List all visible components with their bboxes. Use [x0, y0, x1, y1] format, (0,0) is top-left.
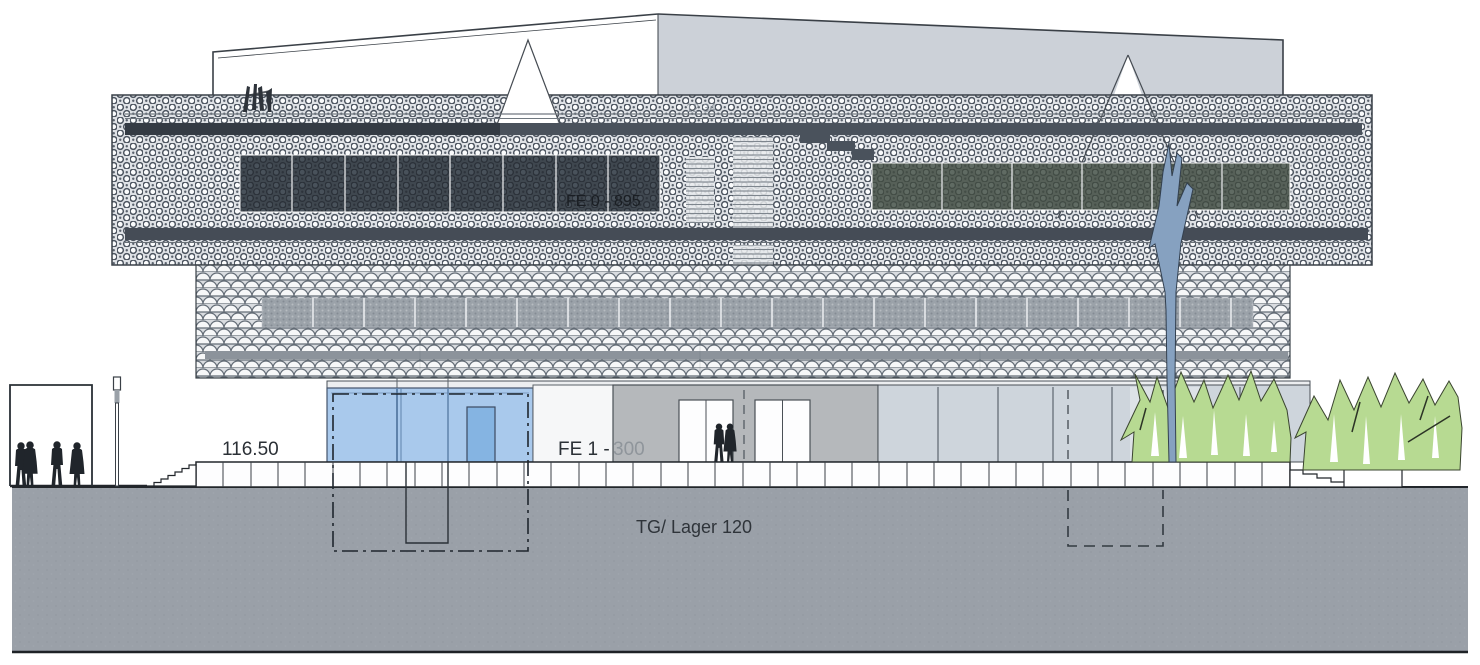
louver-strip-a-dark: [125, 123, 500, 135]
roof-gray-volume: [658, 14, 1283, 95]
entrance-wall: [613, 385, 878, 462]
lamp-post: [114, 377, 121, 486]
roof-white-volume: [213, 14, 658, 95]
label-roof-faint: 12 34: [686, 101, 716, 115]
label-basement: TG/ Lager 120: [636, 517, 752, 537]
pedestrians-left: [15, 441, 85, 486]
plaza-pavement: [196, 462, 1290, 487]
label-fe0: FE 0 - 895: [566, 193, 641, 210]
label-fe1: FE 1 -: [558, 439, 610, 460]
middle-louver-strip: [205, 351, 1288, 359]
middle-window-band: [262, 298, 1253, 327]
upper-window-band-right: [872, 163, 1290, 210]
glass-front-blue: [327, 378, 533, 462]
steps-left: [147, 465, 196, 486]
elevation-drawing: 116.50 FE 1 - 300 FE 0 - 895 TG/ Lager 1…: [0, 0, 1480, 665]
lamp-pole: [116, 403, 119, 486]
label-plaza-level: 116.50: [222, 439, 279, 460]
lamp-head: [114, 377, 121, 390]
steps-right-platform: [1344, 468, 1402, 487]
roof-volume: [213, 14, 1283, 95]
glass-door-blue: [467, 407, 495, 462]
ground-mass: [12, 487, 1468, 652]
label-fe1-value: 300: [613, 439, 645, 460]
lamp-band: [115, 390, 120, 403]
steps-right-treads: [1290, 470, 1345, 487]
underground-fill: [12, 487, 1468, 652]
steps-right: [1290, 468, 1402, 487]
middle-facade-band: [196, 265, 1290, 378]
